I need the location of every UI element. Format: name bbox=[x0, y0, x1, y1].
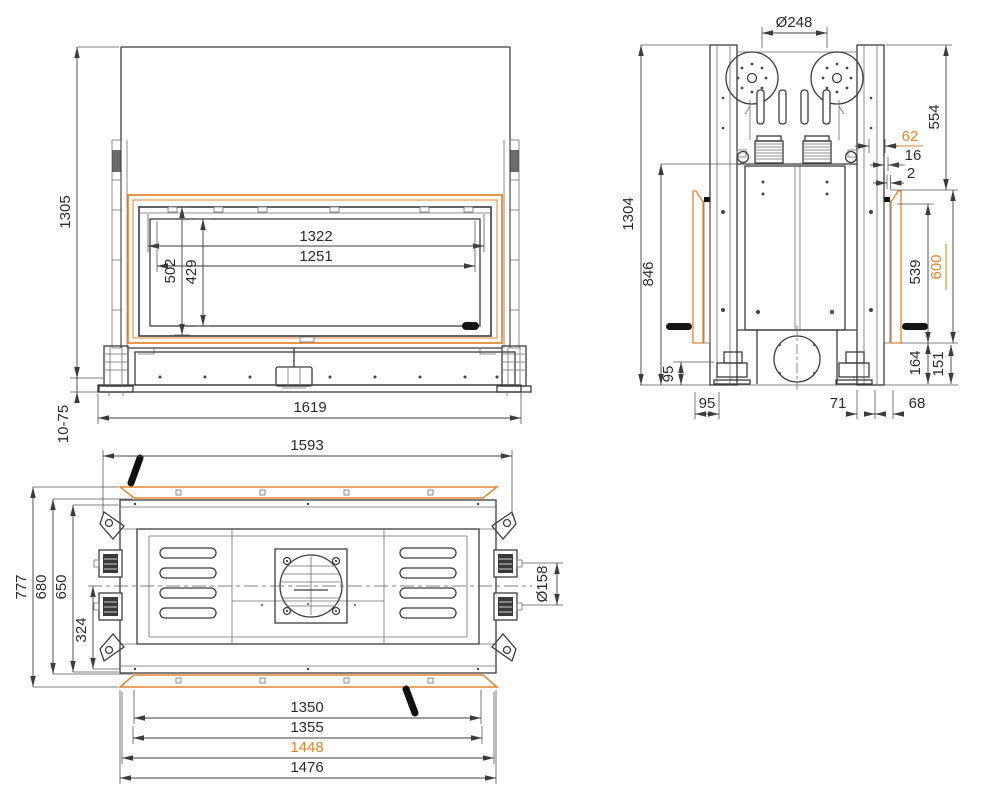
dim-top-1350: 1350 bbox=[290, 699, 323, 716]
side-foot-rear bbox=[836, 352, 872, 384]
dim-top-flue-diameter: Ø158 bbox=[534, 566, 551, 603]
dim-side-base-68: 68 bbox=[909, 395, 926, 412]
dim-side-offset-2: 2 bbox=[907, 165, 915, 182]
side-guide-slots bbox=[757, 90, 830, 124]
front-base bbox=[98, 348, 521, 392]
front-foot-left bbox=[99, 346, 133, 396]
dim-front-overall-height: 1305 bbox=[57, 195, 74, 228]
top-flange-front bbox=[120, 487, 497, 498]
top-view: 1593 777 680 650 324 Ø158 1350 1355 bbox=[13, 437, 563, 784]
dim-side-151: 151 bbox=[930, 351, 947, 376]
door-handle bbox=[462, 322, 479, 330]
front-foot-right bbox=[497, 346, 531, 396]
side-pulley-left bbox=[726, 52, 778, 104]
dim-front-base-width: 1619 bbox=[293, 399, 326, 416]
dim-top-depth-650: 650 bbox=[53, 574, 70, 599]
top-inner-box bbox=[137, 529, 479, 644]
front-view: 1305 10-75 1322 1251 502 429 1619 bbox=[55, 47, 531, 443]
top-flue-plate bbox=[275, 549, 347, 623]
dim-front-glass-visible-height: 429 bbox=[183, 259, 200, 284]
front-guide-post-left bbox=[112, 140, 121, 348]
dim-top-1448: 1448 bbox=[290, 739, 323, 756]
dim-side-trim-depth: 62 bbox=[902, 128, 919, 145]
dim-side-opening-height: 539 bbox=[907, 259, 924, 284]
dim-side-base-95: 95 bbox=[699, 395, 716, 412]
side-view: Ø248 554 1304 846 62 16 2 bbox=[620, 14, 958, 419]
side-foot-front bbox=[714, 352, 750, 384]
front-body-outline bbox=[121, 47, 510, 348]
side-handle-left bbox=[666, 323, 692, 330]
top-rail-screws bbox=[134, 503, 479, 670]
side-post-rear bbox=[857, 45, 884, 385]
fireplace-dimension-drawing: 1305 10-75 1322 1251 502 429 1619 bbox=[0, 0, 985, 798]
dim-side-trim-height: 600 bbox=[928, 254, 945, 279]
dim-top-1476: 1476 bbox=[290, 759, 323, 776]
door-bottom-latch bbox=[300, 337, 314, 342]
top-latch-left-1 bbox=[99, 550, 122, 577]
dim-top-1355: 1355 bbox=[290, 719, 323, 736]
top-latch-right-2 bbox=[494, 593, 517, 620]
top-body-outline bbox=[120, 500, 496, 673]
dim-side-overall-height: 1304 bbox=[620, 197, 637, 230]
dim-side-upper-section: 554 bbox=[926, 104, 943, 129]
side-handle-right bbox=[902, 323, 928, 330]
top-handle-rear bbox=[406, 689, 415, 713]
side-spring-right bbox=[803, 136, 831, 163]
side-rail-left bbox=[704, 197, 710, 343]
top-corner-brackets bbox=[100, 512, 516, 661]
front-center-mechanism bbox=[276, 348, 312, 388]
top-vent-slots-left bbox=[160, 548, 216, 618]
dim-top-overall-depth: 777 bbox=[13, 574, 30, 599]
dim-front-leveling-range: 10-75 bbox=[55, 405, 72, 443]
front-base-screws bbox=[159, 376, 499, 379]
dim-side-body-height: 846 bbox=[640, 261, 657, 286]
side-spring-left bbox=[755, 136, 783, 163]
side-pulley-right bbox=[811, 52, 863, 104]
top-latch-left-2 bbox=[99, 593, 122, 620]
top-flange-rear bbox=[120, 675, 497, 687]
dim-side-rear-foot-offset: 95 bbox=[660, 366, 677, 383]
top-vent-slots-right bbox=[400, 548, 456, 618]
dim-front-glass-visible-width: 1251 bbox=[299, 248, 332, 265]
side-orange-trim-left bbox=[693, 191, 703, 343]
dim-side-pulley-diameter: Ø248 bbox=[776, 14, 813, 31]
top-latch-right-1 bbox=[494, 550, 517, 577]
technical-drawing-sheet: 1305 10-75 1322 1251 502 429 1619 bbox=[0, 0, 985, 798]
dim-side-base-71: 71 bbox=[830, 395, 847, 412]
dim-top-depth-680: 680 bbox=[33, 574, 50, 599]
dim-front-glass-opening-height: 502 bbox=[162, 258, 179, 283]
front-guide-post-right bbox=[510, 140, 519, 348]
top-handle-front bbox=[131, 458, 140, 483]
dim-top-depth-324: 324 bbox=[73, 617, 90, 642]
side-rail-right bbox=[884, 197, 890, 343]
side-body-panel bbox=[745, 166, 845, 330]
dim-top-overall-width: 1593 bbox=[290, 437, 323, 454]
dim-side-164: 164 bbox=[907, 350, 924, 375]
top-dimensions: 1593 777 680 650 324 Ø158 1350 1355 bbox=[13, 437, 563, 784]
dim-side-offset-16: 16 bbox=[905, 147, 922, 164]
side-dimensions: Ø248 554 1304 846 62 16 2 bbox=[620, 14, 958, 419]
side-orange-trim-right bbox=[891, 191, 901, 343]
dim-front-glass-opening-width: 1322 bbox=[299, 228, 332, 245]
